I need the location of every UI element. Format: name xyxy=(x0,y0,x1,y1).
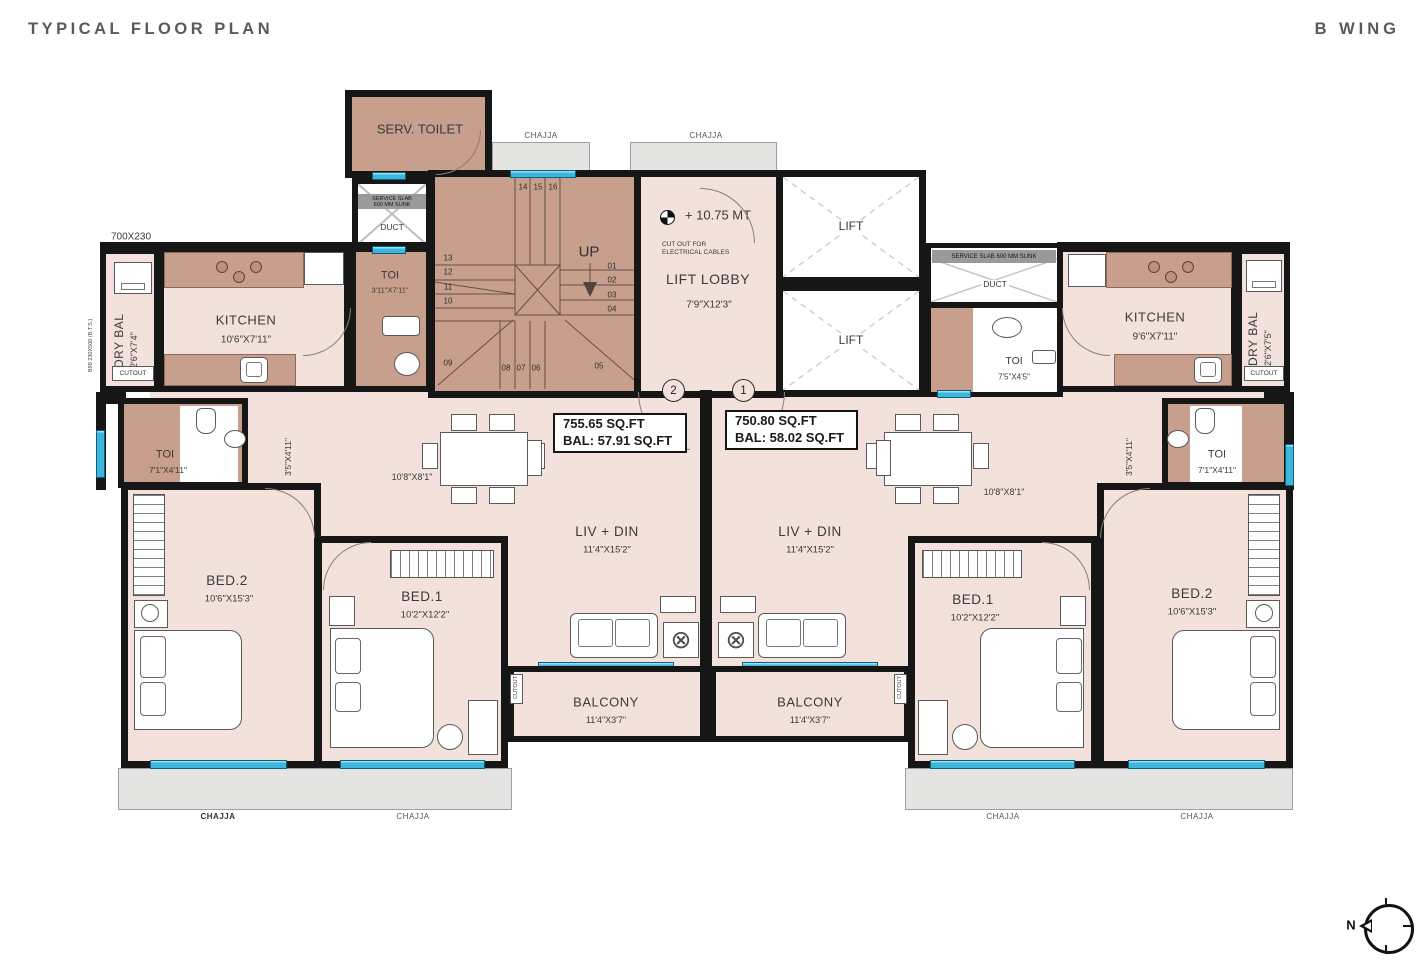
hob-burner-icon xyxy=(250,261,262,273)
wardrobe-icon xyxy=(922,550,1022,578)
window xyxy=(930,760,1075,769)
cutout-tag-vert: CUTOUT xyxy=(510,674,523,704)
dry-bal-right-label: DRY BAL xyxy=(1246,294,1260,366)
compass-tick-s xyxy=(1385,945,1387,954)
bed2-left-dim: 10'6"X15'3" xyxy=(205,595,253,606)
stair-num: 14 xyxy=(519,183,528,192)
armchair-icon xyxy=(660,596,696,613)
washbasin-icon xyxy=(224,430,246,448)
up-arrow-head xyxy=(583,282,597,297)
toi-core-wet-zone xyxy=(931,308,973,392)
dining-table-icon xyxy=(440,432,528,486)
table-lamp-icon xyxy=(141,604,159,622)
cutout-label: CUTOUT xyxy=(897,676,903,699)
wc-icon xyxy=(196,408,216,434)
flat2-bal-area: BAL: 57.91 SQ.FT xyxy=(563,433,672,450)
floor-trap-icon: ⊗ xyxy=(663,622,699,658)
unit-number-2: 2 xyxy=(662,379,685,402)
pillow-icon xyxy=(335,638,361,674)
duct-right-label: DUCT xyxy=(981,280,1009,290)
wall-patch xyxy=(1264,392,1294,404)
cutout-tag: CUTOUT xyxy=(1244,366,1284,381)
sink-basin-detail xyxy=(246,362,262,377)
stair-num: 08 xyxy=(502,364,511,373)
side-table-icon xyxy=(329,596,355,626)
sink-basin-detail xyxy=(1200,362,1216,377)
toi-attached-label: TOI xyxy=(381,270,399,283)
stair-num: 07 xyxy=(517,364,526,373)
dining-chair-icon xyxy=(451,487,477,504)
sofa-icon xyxy=(570,613,658,658)
kitchen-left-label: KITCHEN xyxy=(216,314,277,329)
washer-detail xyxy=(1252,281,1276,288)
duct-left-label: DUCT xyxy=(380,223,404,233)
toi-core-dim: 7'5"X4'5" xyxy=(998,372,1030,381)
stair-num: 04 xyxy=(608,305,617,314)
stair-num: 13 xyxy=(444,254,453,263)
table-lamp-icon xyxy=(1255,604,1273,622)
flat1-bal-area: BAL: 58.02 SQ.FT xyxy=(735,430,844,447)
bed2-right-label: BED.2 xyxy=(1171,586,1213,602)
dining-chair-icon xyxy=(933,487,959,504)
tv-unit-icon xyxy=(527,440,542,476)
sofa-cushion xyxy=(578,619,613,647)
dining-chair-icon xyxy=(489,414,515,431)
pillow-icon xyxy=(1056,682,1082,712)
balcony-left-dim: 11'4"X3'7" xyxy=(586,715,626,725)
chajja-label: CHAJJA xyxy=(396,812,429,821)
bed1-left-dim: 10'2"X12'2" xyxy=(401,611,449,622)
passage-dim-right: 3'5"X4'11" xyxy=(1124,416,1134,476)
kitchen-left-dim: 10'6"X7'11" xyxy=(221,334,271,346)
dry-bal-left-dim: 2'6"X7'4" xyxy=(129,294,139,368)
bathtub-icon xyxy=(382,316,420,336)
fridge-icon xyxy=(304,252,344,285)
compass-tick-e xyxy=(1403,925,1412,927)
hob-burner-icon xyxy=(1182,261,1194,273)
dining-chair-icon xyxy=(933,414,959,431)
toi-attached-dim: 3'11"X7'11" xyxy=(371,287,408,296)
pillow-icon xyxy=(1250,636,1276,678)
hob-burner-icon xyxy=(1148,261,1160,273)
dining-chair-icon xyxy=(895,487,921,504)
chair-icon xyxy=(437,724,463,750)
side-table-icon xyxy=(1060,596,1086,626)
bed2-left-label: BED.2 xyxy=(206,573,248,589)
kitchen-right-dim: 9'6"X7'11" xyxy=(1133,331,1178,343)
chajja-label: CHAJJA xyxy=(200,812,235,821)
stair-num: 01 xyxy=(608,262,617,271)
compass-tick-n xyxy=(1385,898,1387,907)
washer-detail xyxy=(121,283,145,290)
dining-chair-icon xyxy=(973,443,989,469)
floor-trap-icon: ⊗ xyxy=(718,622,754,658)
toi-right-label: TOI xyxy=(1208,449,1226,462)
washbasin-icon xyxy=(394,352,420,376)
wing-label: B WING xyxy=(1315,20,1400,39)
page-title: TYPICAL FLOOR PLAN xyxy=(28,20,273,39)
level-marker-icon xyxy=(660,210,675,225)
stair-num: 06 xyxy=(532,364,541,373)
window xyxy=(372,246,406,254)
lift-lobby-label: LIFT LOBBY xyxy=(666,271,750,287)
stair-num: 12 xyxy=(444,268,453,277)
service-slab-left: SERVICE SLAB 600 MM SUNK xyxy=(358,194,426,209)
stair-num: 09 xyxy=(444,359,453,368)
chair-icon xyxy=(952,724,978,750)
chajja-label: CHAJJA xyxy=(524,131,557,140)
area-box-flat1: 750.80 SQ.FT BAL: 58.02 SQ.FT xyxy=(725,410,858,450)
stairs-up-label: UP xyxy=(579,243,600,260)
chajja-bottom-left xyxy=(118,768,512,810)
tv-unit-icon xyxy=(876,440,891,476)
chajja-label: CHAJJA xyxy=(689,131,722,140)
stair-num: 15 xyxy=(534,183,543,192)
pillow-icon xyxy=(335,682,361,712)
stair-num: 10 xyxy=(444,297,453,306)
toi-left-label: TOI xyxy=(156,449,174,462)
hob-burner-icon xyxy=(233,271,245,283)
compass-north-arrow xyxy=(1359,919,1372,933)
wardrobe-icon xyxy=(133,494,165,596)
desk-icon xyxy=(918,700,948,755)
stair-num: 03 xyxy=(608,291,617,300)
dining-chair-icon xyxy=(451,414,477,431)
chajja-bottom-right xyxy=(905,768,1293,810)
compass-arrow-inner xyxy=(1364,922,1371,930)
washbasin-icon xyxy=(992,317,1022,338)
stair-num: 16 xyxy=(549,183,558,192)
bed1-left-label: BED.1 xyxy=(401,589,443,605)
pillow-icon xyxy=(1250,682,1276,716)
passage-dim-left: 3'5"X4'11" xyxy=(283,416,293,476)
bed1-right-dim: 10'2"X12'2" xyxy=(951,614,999,625)
balcony-right-label: BALCONY xyxy=(777,696,843,711)
sofa-cushion xyxy=(766,619,801,647)
kitchen-left-counter-top xyxy=(164,252,304,288)
pillow-icon xyxy=(1056,638,1082,674)
dining-chair-icon xyxy=(489,487,515,504)
dining-dim-left: 10'8"X8'1" xyxy=(392,472,433,482)
washbasin-icon xyxy=(1167,430,1189,448)
sofa-cushion xyxy=(615,619,650,647)
stair-num: 11 xyxy=(444,283,452,292)
livdin-left-label: LIV + DIN xyxy=(575,524,638,540)
window xyxy=(937,390,971,398)
unit-divider-wall xyxy=(700,390,712,742)
washing-machine-icon xyxy=(1246,260,1282,292)
pillow-icon xyxy=(140,682,166,716)
stair-num: 05 xyxy=(595,362,604,371)
toi-core-label: TOI xyxy=(1005,355,1022,367)
compass-north-label: N xyxy=(1346,919,1355,934)
window xyxy=(150,760,287,769)
balcony-right-dim: 11'4"X3'7" xyxy=(790,715,830,725)
fridge-icon xyxy=(1068,254,1106,287)
livdin-right-label: LIV + DIN xyxy=(778,524,841,540)
window xyxy=(1285,444,1294,486)
window xyxy=(96,430,105,478)
pillow-icon xyxy=(140,636,166,678)
dining-chair-icon xyxy=(895,414,921,431)
balcony-left-label: BALCONY xyxy=(573,696,639,711)
desk-icon xyxy=(468,700,498,755)
flat1-area: 750.80 SQ.FT xyxy=(735,413,817,430)
armchair-icon xyxy=(720,596,756,613)
floor-plan-page: { "header": { "title": "TYPICAL FLOOR PL… xyxy=(0,0,1421,965)
wardrobe-icon xyxy=(1248,494,1280,596)
kitchen-right-label: KITCHEN xyxy=(1125,311,1186,326)
lift-lobby-dim: 7'9"X12'3" xyxy=(686,299,731,311)
sofa-icon xyxy=(758,613,846,658)
livdin-right-dim: 11'4"X15'2" xyxy=(786,546,834,557)
livdin-left-dim: 11'4"X15'2" xyxy=(583,546,631,557)
service-slab-line2: 600 MM SUNK xyxy=(374,202,411,208)
sink-icon xyxy=(1194,357,1222,383)
cistern-icon xyxy=(1032,350,1056,364)
wardrobe-icon xyxy=(390,550,494,578)
kitchen-left-counter-bottom xyxy=(164,354,296,386)
unit-number-1: 1 xyxy=(732,379,755,402)
bed1-right-label: BED.1 xyxy=(952,592,994,608)
sink-icon xyxy=(240,357,268,383)
cutout-tag: CUTOUT xyxy=(112,366,154,381)
dining-chair-icon xyxy=(422,443,438,469)
window xyxy=(372,172,406,180)
cutout-label: CUTOUT xyxy=(513,676,519,699)
dry-bal-right-dim: 2'6"X7'5" xyxy=(1263,296,1273,366)
duct-cross-lines xyxy=(358,184,426,244)
duct-left xyxy=(352,178,432,250)
sofa-cushion xyxy=(803,619,838,647)
dining-dim-right: 10'8"X8'1" xyxy=(984,487,1025,497)
window xyxy=(510,170,576,178)
lift-2-label: LIFT xyxy=(836,334,867,348)
stair-num: 02 xyxy=(608,276,617,285)
cutout-note: CUT OUT FOR ELECTRICAL CABLES xyxy=(662,241,729,257)
lift-1-label: LIFT xyxy=(836,220,867,234)
window xyxy=(340,760,485,769)
flat2-area: 755.65 SQ.FT xyxy=(563,416,645,433)
cutout-tag-vert: CUTOUT xyxy=(894,674,907,704)
area-box-flat2: 755.65 SQ.FT BAL: 57.91 SQ.FT xyxy=(553,413,687,453)
hob-burner-icon xyxy=(1165,271,1177,283)
window xyxy=(1128,760,1265,769)
dining-table-icon xyxy=(884,432,972,486)
flat2-passage-fill-2 xyxy=(320,488,512,538)
toi-left-dim: 7'1"X4'11" xyxy=(149,466,187,476)
toi-right-dim: 7'1"X4'11" xyxy=(1198,466,1236,476)
chajja-label: CHAJJA xyxy=(986,812,1019,821)
washing-machine-icon xyxy=(114,262,152,294)
beam-note: B99 230X500 (B.T.S.) xyxy=(88,272,94,372)
hob-burner-icon xyxy=(216,261,228,273)
dry-bal-left-label: DRY BAL xyxy=(112,292,126,368)
wc-icon xyxy=(1195,408,1215,434)
cutout-note-line2: ELECTRICAL CABLES xyxy=(662,249,729,257)
bed2-right-dim: 10'6"X15'3" xyxy=(1168,608,1216,619)
service-slab-right: SERVICE SLAB 600 MM SUNK xyxy=(932,250,1056,263)
chajja-label: CHAJJA xyxy=(1180,812,1213,821)
